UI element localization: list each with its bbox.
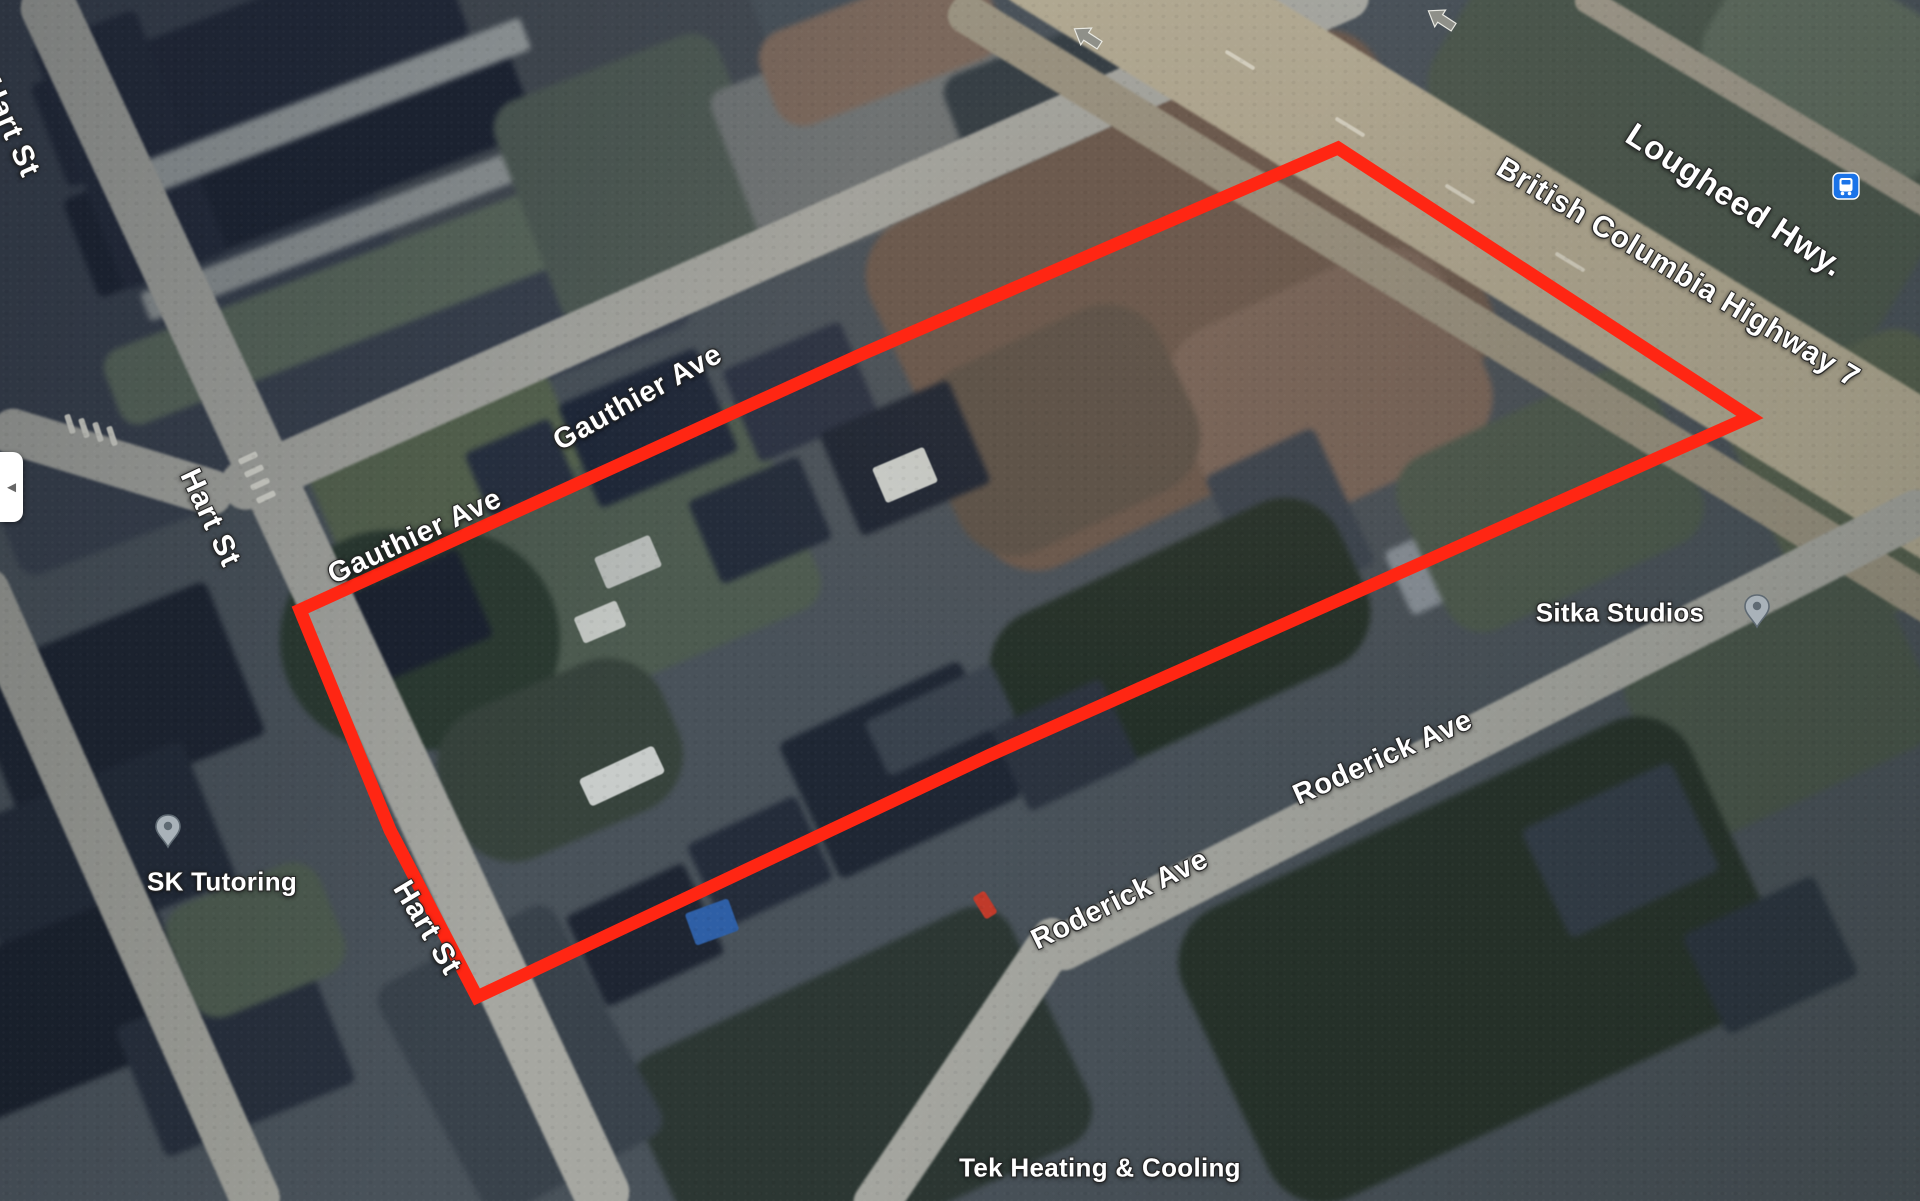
collapse-side-panel-button[interactable]: ◄ [0,452,23,522]
satellite-map[interactable]: Hart StHart StHart StGauthier AveGauthie… [0,0,1920,1201]
chevron-left-icon: ◄ [4,479,19,496]
controls-layer: ◄ [0,0,1920,1201]
